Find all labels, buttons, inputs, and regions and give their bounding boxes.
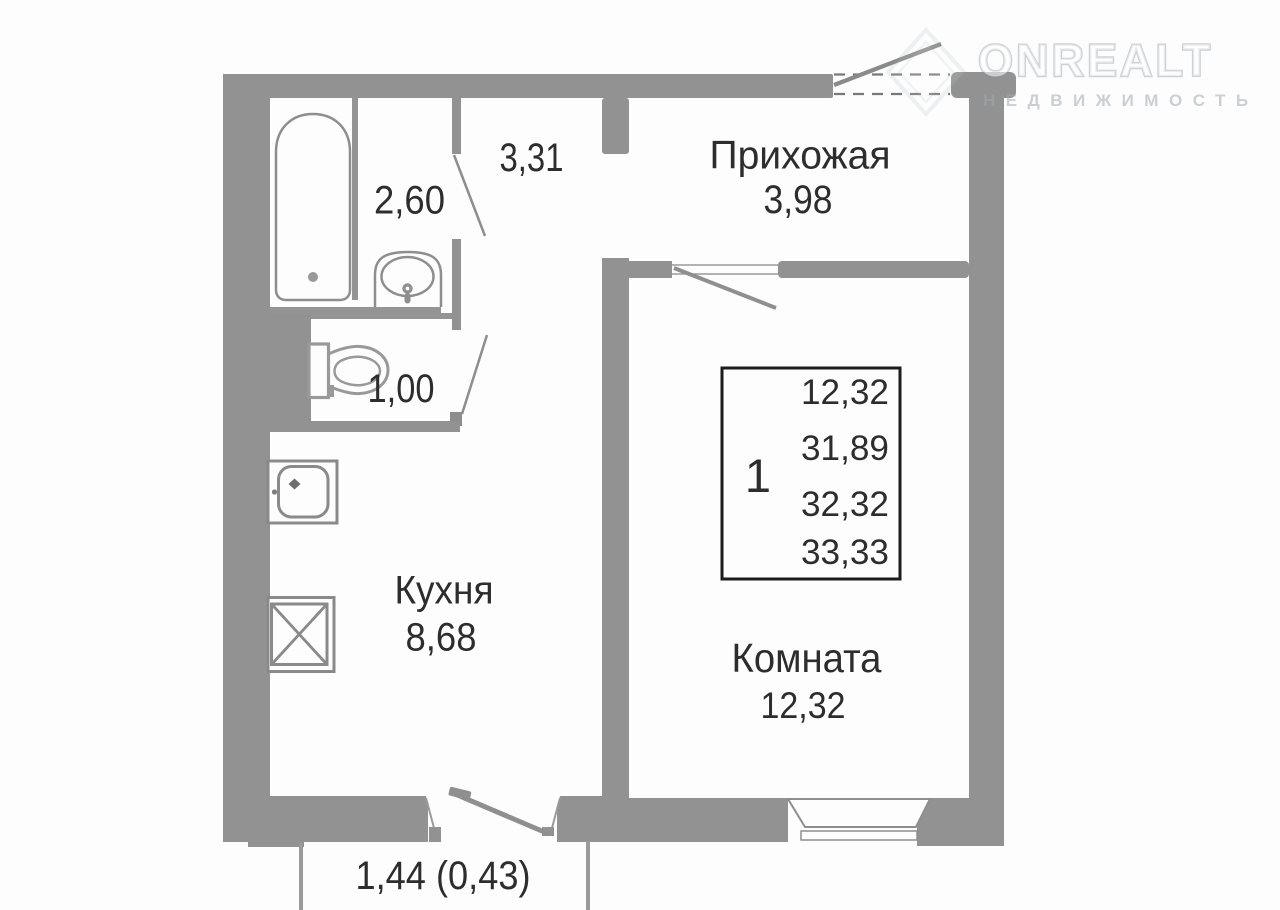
svg-text:Комната: Комната bbox=[732, 635, 882, 681]
svg-text:12,32: 12,32 bbox=[801, 373, 889, 412]
svg-text:12,32: 12,32 bbox=[761, 685, 846, 726]
svg-text:3,31: 3,31 bbox=[500, 136, 564, 180]
svg-text:1,44 (0,43): 1,44 (0,43) bbox=[356, 854, 531, 898]
svg-text:3,98: 3,98 bbox=[764, 178, 833, 222]
svg-text:2,60: 2,60 bbox=[374, 179, 445, 223]
svg-text:31,89: 31,89 bbox=[801, 429, 889, 468]
svg-text:8,68: 8,68 bbox=[406, 616, 477, 660]
svg-text:Кухня: Кухня bbox=[395, 569, 494, 613]
svg-text:33,33: 33,33 bbox=[801, 533, 889, 572]
svg-text:ONREALT: ONREALT bbox=[978, 35, 1213, 86]
svg-text:1: 1 bbox=[745, 449, 771, 502]
svg-text:1,00: 1,00 bbox=[368, 367, 435, 411]
svg-text:НЕДВИЖИМОСТЬ: НЕДВИЖИМОСТЬ bbox=[983, 91, 1259, 110]
svg-text:32,32: 32,32 bbox=[801, 485, 889, 524]
svg-text:Прихожая: Прихожая bbox=[710, 134, 891, 178]
